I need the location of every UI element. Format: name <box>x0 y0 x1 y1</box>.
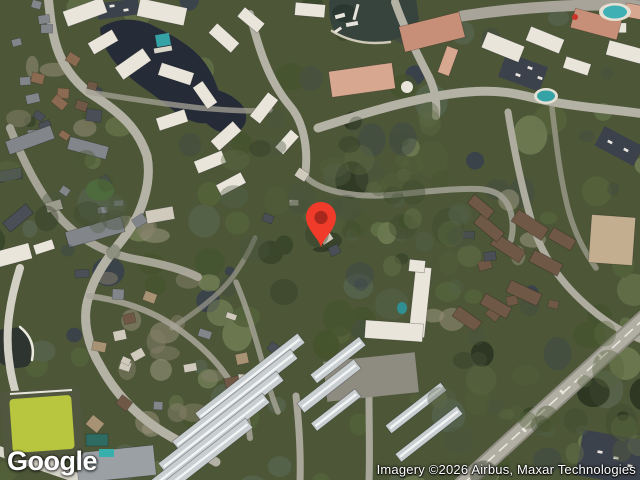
pin-shadow <box>313 247 329 252</box>
pin-body <box>306 202 336 247</box>
attribution-text: Imagery ©2026 Airbus, Maxar Technologies <box>377 462 636 477</box>
map-pin[interactable] <box>303 201 339 253</box>
map-viewport[interactable]: Google Imagery ©2026 Airbus, Maxar Techn… <box>0 0 640 480</box>
google-logo[interactable]: Google <box>7 446 97 477</box>
pin-hole <box>314 211 327 224</box>
